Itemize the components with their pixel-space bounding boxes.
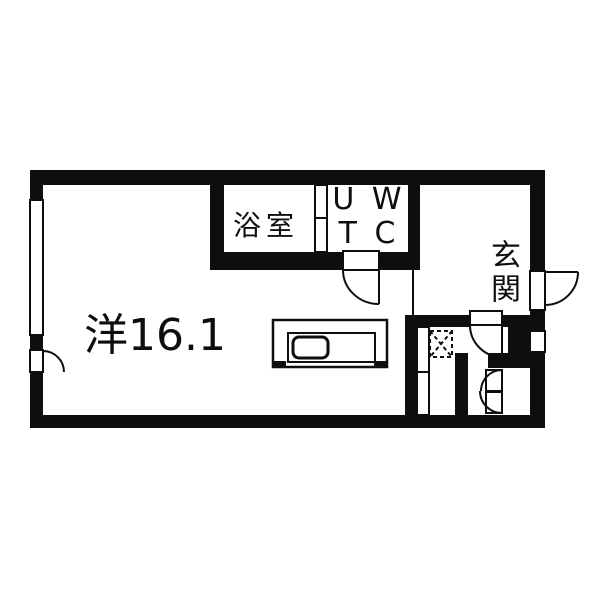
living-room-label: 洋16.1 [84,299,226,363]
wall-top [30,170,545,185]
hallway-door-arc [470,325,502,357]
wall-corridor-washer [455,353,468,415]
ut-wc-label-row1: U W [325,183,413,217]
wall-left-upper [30,185,43,200]
entrance-door-leaf [530,271,545,310]
entrance-label: 玄関 [480,239,524,307]
floor-plan-canvas: 洋16.1 浴室 U W T C 玄関 [0,0,600,600]
ut-wc-label: U W T C [325,183,413,251]
wall-right-upper [530,185,545,271]
right-wall-window [530,331,545,352]
wall-left-mid [30,335,43,350]
wall-left-lower [30,372,43,417]
bathroom-label: 浴室 [233,204,299,244]
wall-genkan-bottom-right [502,315,545,327]
wall-closet-top [488,353,545,368]
wc-door-arc [343,270,379,304]
kitchen-counter [273,320,387,367]
hallway-door-leaf [470,311,502,325]
wc-door-leaf [343,251,379,270]
closet-door-leaf-1 [486,370,502,391]
wall-bathroom-bottom-left [210,252,343,270]
wall-corner-block [508,327,530,354]
washer-cabinet-panel-2 [417,372,429,415]
left-wall-door-leaf [30,350,43,372]
ut-wc-label-row2: T C [325,217,413,251]
left-wall-door-arc [43,351,64,372]
entrance-door-arc [545,272,578,305]
washing-machine-space-icon [430,331,452,357]
left-wall-window [30,200,43,335]
sink-icon [293,337,328,358]
wall-bottom [30,415,545,428]
counter-foot-left [273,361,286,367]
closet-door-leaf-2 [486,392,502,413]
washer-cabinet-panel-1 [417,327,429,372]
